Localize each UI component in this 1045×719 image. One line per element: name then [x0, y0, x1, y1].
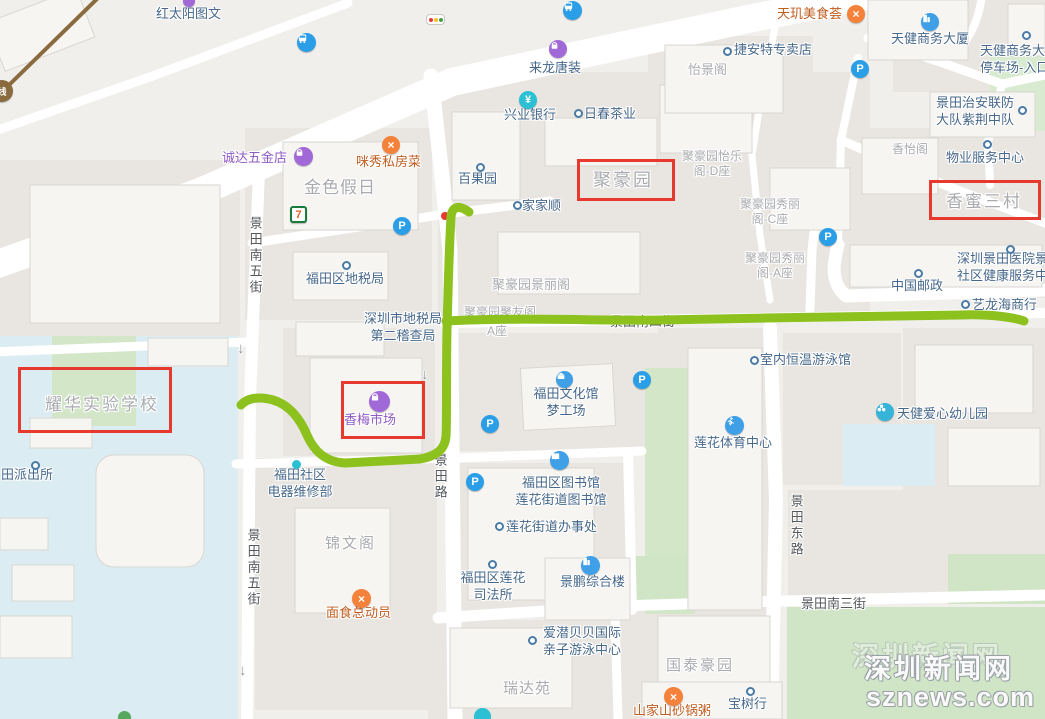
one-way-arrow: ↓ [239, 662, 247, 679]
area-xiangyi-ge: 香怡阁 [892, 142, 928, 157]
restaurant-icon[interactable]: × [847, 5, 865, 23]
street-jingtian-s5-upper: 景田南五街 [246, 216, 263, 296]
restaurant-icon[interactable]: × [352, 589, 371, 608]
poi-dot[interactable] [495, 522, 504, 531]
office-building-icon[interactable] [921, 13, 939, 31]
sports-center-icon[interactable] [725, 416, 744, 435]
poi-icon-partial[interactable] [474, 708, 491, 719]
highlight-box-xiangmei-market [341, 381, 425, 439]
poi-xingye-bank[interactable]: 兴业银行 [504, 107, 556, 124]
seven-eleven-icon[interactable]: 7 [290, 206, 307, 223]
parking-icon[interactable]: P [633, 371, 651, 389]
map-canvas[interactable]: 景田南五街 景田南五街 景田路 景田东路 景田南三街 景田南四街 ↓ ↓ ↓ 红… [0, 0, 1045, 719]
poi-chengda-hardware[interactable]: 诚达五金店 [222, 150, 287, 167]
traffic-light-icon [426, 14, 445, 25]
poi-dot[interactable] [746, 687, 755, 696]
street-jingtian-s3: 景田南三街 [801, 596, 866, 613]
poi-dot[interactable] [574, 109, 583, 118]
poi-dot[interactable] [476, 163, 485, 172]
poi-futian-repair[interactable]: 福田社区 电器维修部 [254, 467, 346, 500]
street-jingtian-s5-lower: 景田南五街 [244, 528, 261, 608]
bus-stop-icon[interactable] [563, 1, 582, 20]
highlight-box-juhaoyuan [577, 159, 675, 201]
poi-lianhua-sports[interactable]: 莲花体育中心 [694, 435, 772, 452]
poi-dot[interactable] [342, 261, 351, 270]
street-jingtian-east-road: 景田东路 [787, 494, 804, 558]
poi-wuye-center[interactable]: 物业服务中心 [946, 150, 1024, 167]
one-way-arrow: ↓ [237, 340, 245, 357]
area-juhaoyuan-juyou-a: A座 [487, 324, 507, 339]
tree-icon [118, 711, 131, 719]
area-juhaoyuan-juyou: 聚豪园聚友阁 [464, 305, 536, 320]
poi-dot[interactable] [723, 47, 732, 56]
shopping-bag-icon[interactable] [549, 40, 567, 58]
kindergarten-icon[interactable] [876, 403, 894, 421]
watermark-line1: 深圳新闻网 [864, 656, 1014, 683]
poi-mixiu-restaurant[interactable]: 咪秀私房菜 [356, 154, 421, 171]
bus-stop-icon[interactable] [297, 33, 316, 52]
poi-dot[interactable] [961, 300, 970, 309]
poi-dot[interactable] [1006, 245, 1015, 254]
poi-futian-library[interactable]: 福田区图书馆 莲花街道图书馆 [505, 475, 617, 508]
parking-icon[interactable]: P [393, 217, 411, 235]
poi-dot[interactable] [983, 140, 992, 149]
poi-hongtaiyang-tuwen[interactable]: 红太阳图文 [156, 6, 221, 23]
poi-jingpeng-building[interactable]: 景鹏综合楼 [560, 574, 625, 591]
poi-dot[interactable] [528, 636, 537, 645]
library-book-icon[interactable] [550, 451, 569, 470]
poi-jieante[interactable]: 捷安特专卖店 [734, 42, 812, 59]
poi-dot[interactable] [513, 201, 522, 210]
poi-china-post[interactable]: 中国邮政 [891, 278, 943, 295]
poi-tianji-meishihui[interactable]: 天玑美食荟 [777, 6, 842, 23]
parking-icon[interactable]: P [851, 60, 869, 78]
area-juhaoyuan-xiuli-a: 聚豪园秀丽 阁-A座 [731, 251, 819, 282]
watermark-line2: sznews.com [866, 684, 1035, 711]
poi-futian-culture[interactable]: 福田文化馆 梦工场 [516, 386, 616, 419]
street-jingtian-s4: 景田南四街 [610, 314, 675, 331]
shopping-bag-icon[interactable] [294, 147, 313, 166]
poi-lianhua-justice[interactable]: 福田区莲花 司法所 [447, 570, 539, 603]
parking-icon[interactable]: P [819, 228, 837, 246]
poi-dot[interactable] [1018, 106, 1027, 115]
restaurant-icon[interactable]: × [382, 136, 400, 154]
poi-baiguoyuan[interactable]: 百果园 [458, 171, 497, 188]
poi-futian-tax[interactable]: 福田区地税局 [306, 271, 384, 288]
poi-jingtian-hospital[interactable]: 深圳景田医院景田 社区健康服务中心 [957, 251, 1045, 284]
area-juhaoyuan-jingli: 聚豪园景丽阁 [492, 277, 570, 294]
poi-dot[interactable] [750, 356, 759, 365]
poi-dot[interactable] [31, 461, 40, 470]
repair-shop-icon[interactable] [292, 460, 301, 469]
poi-dot[interactable] [488, 560, 497, 569]
street-jingtian-road: 景田路 [431, 453, 448, 501]
poi-richun-tea[interactable]: 日春茶业 [584, 106, 636, 123]
poi-tianjian-tower[interactable]: 天健商务大厦 [891, 31, 969, 48]
poi-sz-tax-audit[interactable]: 深圳市地税局 第二稽查局 [353, 311, 453, 344]
poi-baoshu-hang[interactable]: 宝树行 [728, 696, 767, 713]
poi-paichusuo[interactable]: 田派出所 [1, 467, 53, 484]
poi-lianhua-office[interactable]: 莲花街道办事处 [506, 519, 597, 536]
poi-dot[interactable] [1022, 31, 1031, 40]
area-juhaoyuan-xiuli-c: 聚豪园秀丽 阁-C座 [726, 197, 814, 228]
highlight-box-xiangmi-sancun [929, 180, 1041, 220]
poi-tianjian-parking[interactable]: 天健商务大厦 停车场-入口 [980, 43, 1045, 76]
parking-icon[interactable]: P [481, 415, 499, 433]
poi-aiqian-swim[interactable]: 爱潜贝贝国际 亲子游泳中心 [536, 625, 628, 658]
area-ruida-yuan: 瑞达苑 [503, 679, 551, 698]
poi-dot[interactable] [914, 269, 923, 278]
poi-yilonghai[interactable]: 艺龙海商行 [972, 297, 1037, 314]
poi-jingtian-patrol[interactable]: 景田治安联防 大队紫荆中队 [925, 95, 1025, 128]
area-yijing-ge: 怡景阁 [688, 62, 727, 79]
poi-lailong-tangzhuang[interactable]: 来龙唐装 [529, 60, 581, 77]
poi-indoor-pool[interactable]: 室内恒温游泳馆 [760, 352, 851, 369]
restaurant-icon[interactable]: × [664, 687, 683, 706]
office-building-icon[interactable] [581, 556, 600, 575]
area-juhaoyuan-yile-d: 聚豪园怡乐 阁-D座 [678, 149, 746, 180]
area-guotai-haoyuan: 国泰豪园 [666, 656, 734, 675]
bank-icon[interactable]: ¥ [519, 91, 537, 109]
highlight-box-yaohua-school [18, 367, 172, 433]
culture-hall-icon[interactable] [556, 371, 573, 388]
parking-icon[interactable]: P [466, 473, 484, 491]
area-jinse-jiari: 金色假日 [304, 177, 376, 199]
poi-tianjian-kindergarten[interactable]: 天健爱心幼儿园 [897, 406, 988, 423]
poi-jiajiashun[interactable]: 家家顺 [522, 198, 561, 215]
area-jinwen-ge: 锦文阁 [325, 534, 376, 553]
